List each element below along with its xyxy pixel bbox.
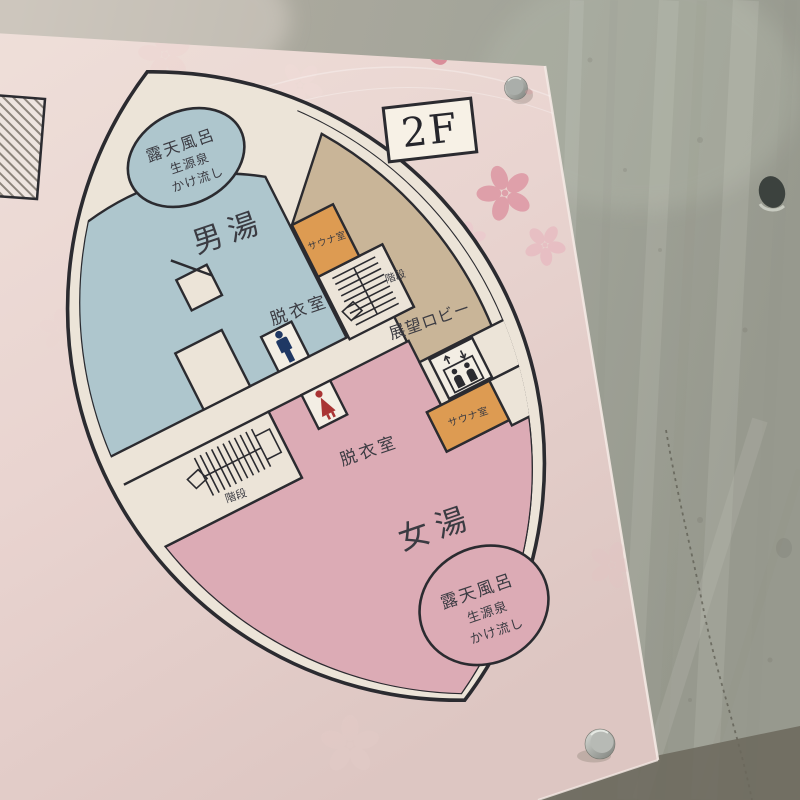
photo-scene: 露天風呂 生源泉 かけ流し 男湯 脱衣室 サウナ室 階段 展望ロビー 脱衣室 サ… (0, 0, 800, 800)
floor-badge: 2F (383, 98, 477, 162)
hatched-area (0, 94, 45, 199)
scene-svg: 露天風呂 生源泉 かけ流し 男湯 脱衣室 サウナ室 階段 展望ロビー 脱衣室 サ… (0, 0, 800, 800)
floor-badge-label: 2F (399, 105, 461, 157)
wall-tie-hole-faint (776, 538, 792, 558)
